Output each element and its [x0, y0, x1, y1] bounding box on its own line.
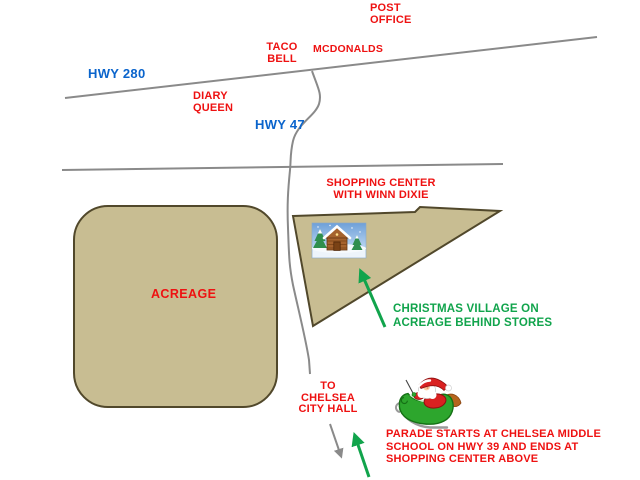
acreage-label: ACREAGE: [151, 288, 216, 300]
hwy-47-label: HWY 47: [255, 119, 305, 131]
taco-bell-label: TACO BELL: [256, 41, 308, 65]
to-chelsea-city-hall-label: TO CHELSEA CITY HALL: [288, 381, 368, 416]
parade-info-label: PARADE STARTS AT CHELSEA MIDDLE SCHOOL O…: [386, 428, 601, 466]
shopping-center-label: SHOPPING CENTER WITH WINN DIXIE: [322, 177, 440, 201]
parade-route-arrow: [355, 436, 369, 477]
santa-sleigh-image: [396, 378, 461, 427]
mcdonalds-label: MCDONALDS: [313, 43, 383, 55]
road-continues-arrow: [330, 424, 341, 456]
post-office-label: POST OFFICE: [370, 2, 412, 26]
cross-road: [62, 164, 503, 170]
christmas-village-map: POST OFFICE TACO BELL MCDONALDS HWY 280 …: [0, 0, 640, 480]
acreage-parcel: [74, 206, 277, 407]
diary-queen-label: DIARY QUEEN: [193, 90, 233, 114]
christmas-village-label: CHRISTMAS VILLAGE ON ACREAGE BEHIND STOR…: [393, 303, 552, 330]
christmas-cabin-image: [312, 223, 366, 258]
hwy-280-label: HWY 280: [88, 68, 146, 80]
